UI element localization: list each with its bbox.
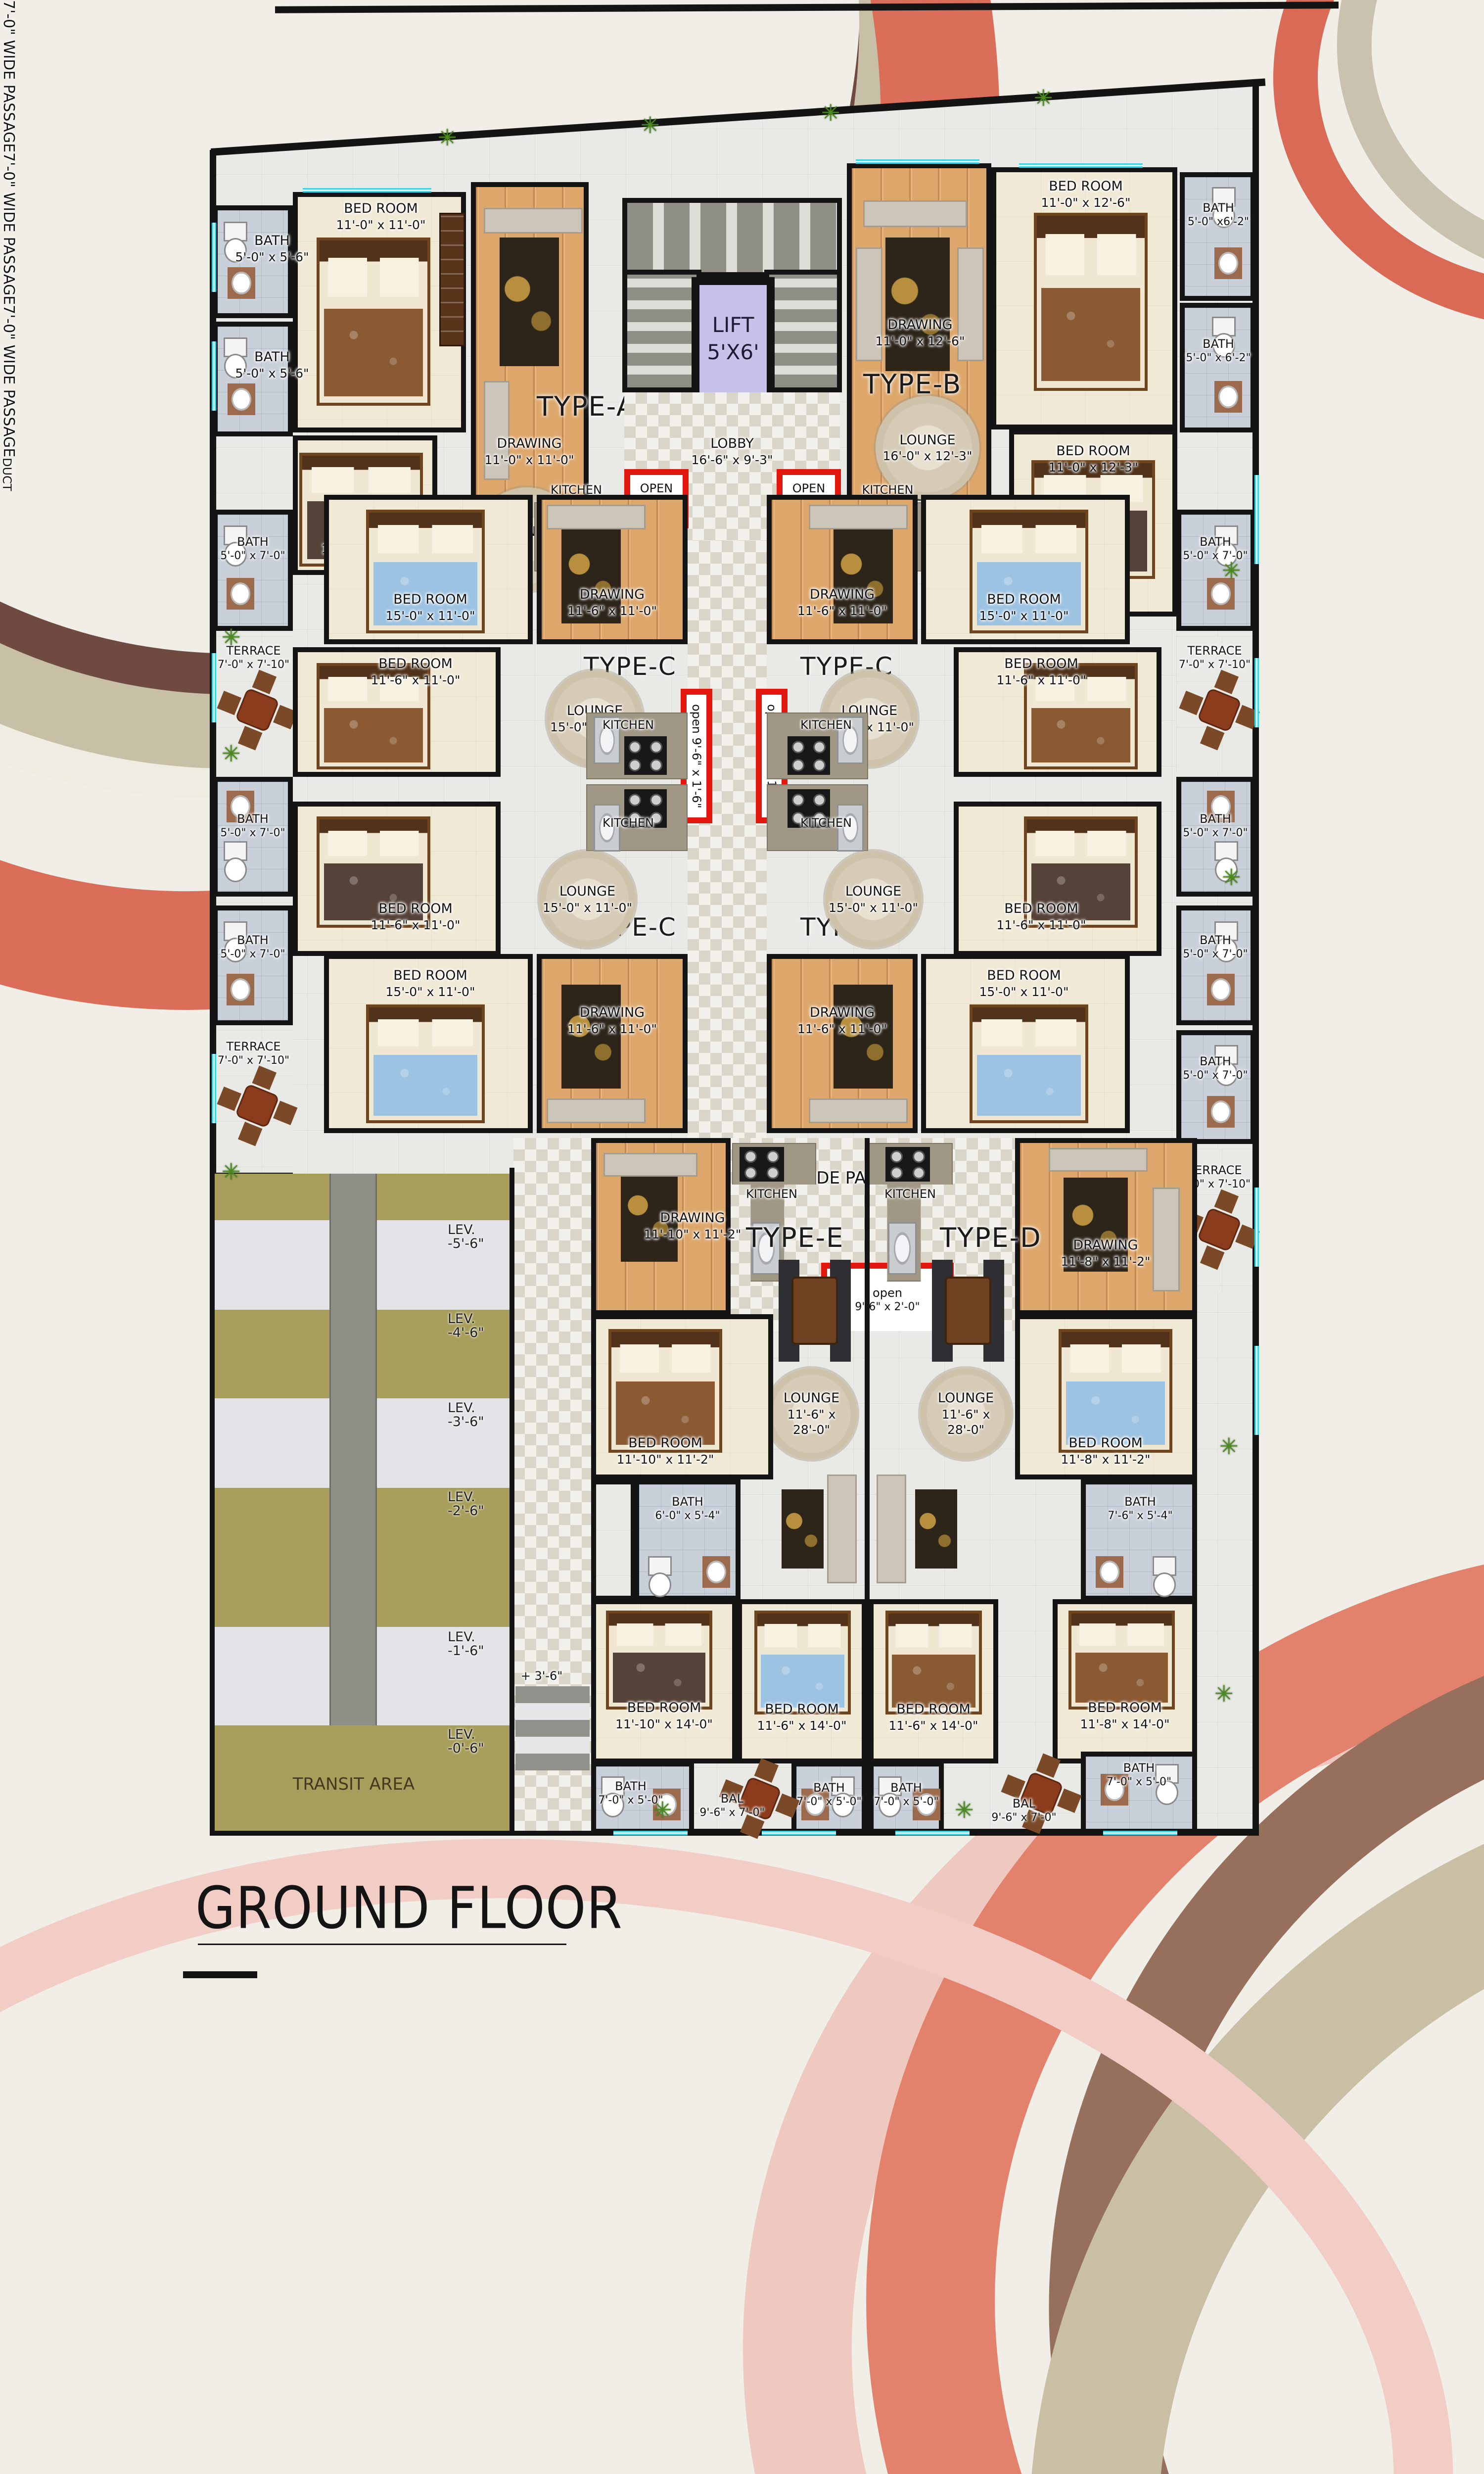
toilet-icon [648,1556,672,1576]
rug-icon [885,238,950,371]
plant-icon: ✳ [1222,559,1241,582]
sofa-icon [547,505,646,529]
sofa-icon [809,505,908,529]
passage-label: 7'-0" WIDE PASSAGE [0,305,17,457]
passage-label: 7'-0" WIDE PASSAGE [0,0,17,152]
unit-label-type-e: TYPE-E [746,1222,844,1253]
room-label-terrace: TERRACE7'-0" x 7'-10" [1171,643,1258,672]
room-label-bedroom: BED ROOM11'-8" x 14'-0" [1053,1700,1197,1732]
sofa-icon [1049,1148,1148,1172]
stairs [622,270,701,392]
basin-icon [227,578,254,610]
room-label-kitchen: KITCHEN [589,815,668,830]
room-label-kitchen: KITCHEN [732,1187,811,1201]
room-label-bath: BATH5'-0" x 5'-6" [232,349,312,381]
room-label-drawing: DRAWING11'-10" x 11'-2" [621,1210,764,1242]
room-label-bath: BATH5'-0" x 7'-0" [214,933,292,961]
room-label-bath: BATH6'-0" x 5'-4" [641,1494,735,1523]
room-label-drawing: DRAWING11'-0" x 12'-6" [851,317,989,349]
floor-plan: BATH5'-0" x 5'-6" BATH5'-0" x 5'-6" BED … [0,0,1484,1979]
toilet-icon [1153,1556,1176,1576]
room-label-bedroom: BED ROOM15'-0" x 11'-0" [359,591,502,623]
room-label-bedroom: BED ROOM11'-8" x 11'-2" [1031,1435,1180,1467]
bed-icon [606,1611,712,1710]
room-label-bath: BATH5'-0" x 7'-0" [1176,811,1254,840]
room-label-drawing: DRAWING11'-6" x 11'-0" [542,586,683,618]
transit-area-label: TRANSIT AREA [262,1774,445,1795]
room-label-kitchen: KITCHEN [589,717,668,732]
bed-icon [608,1329,722,1453]
basin-icon [1207,974,1235,1005]
basin-icon [1214,247,1242,279]
room-label-bedroom: BED ROOM11'-6" x 11'-0" [970,901,1113,933]
basin-icon [702,1556,730,1588]
stairs [764,270,842,392]
room-label-bedroom: BED ROOM11'-0" x 12'-6" [1017,178,1155,210]
sofa-icon [484,208,583,234]
room-label-bedroom: BED ROOM11'-6" x 11'-0" [344,656,487,688]
basin-icon [227,974,254,1005]
room-label-bedroom: BED ROOM15'-0" x 11'-0" [359,967,502,999]
room-label-drawing: DRAWING11'-8" x 11'-2" [1034,1237,1177,1269]
plant-icon: ✳ [1034,87,1053,109]
basin-icon [1207,1096,1235,1128]
room-label-bath: BATH5'-0" x6'-2" [1181,200,1255,229]
room-label-bath: BATH7'-0" x 5'-0" [790,1780,868,1809]
room-label-kitchen: KITCHEN [787,815,866,830]
room-label-bedroom: BED ROOM11'-10" x 11'-2" [591,1435,740,1467]
page-title: GROUND FLOOR [195,1874,623,1942]
rug-icon [782,1489,824,1569]
bed-icon [1034,213,1148,391]
level-label: LEV.-4'-6" [448,1312,484,1340]
window [613,1831,688,1835]
sofa-icon [809,1098,908,1123]
parking-wall [510,1168,514,1831]
plant-icon: ✳ [1214,1682,1234,1705]
basin-icon [1214,381,1242,413]
window [212,341,216,411]
room-label-bath: BATH5'-0" x 7'-0" [1176,933,1254,961]
bed-icon [754,1611,851,1714]
sink-icon [888,1222,917,1275]
balcony-label: BAL9'-6" x 7'-0" [984,1796,1064,1825]
window [212,653,216,722]
room-label-bath: BATH5'-0" x 7'-0" [1176,1054,1254,1083]
bed-icon [1068,1611,1175,1710]
plant-icon: ✳ [1219,1435,1239,1458]
lounge-rug: LOUNGE11'-6" x 28'-0" [766,1368,857,1460]
sofa-icon [863,200,967,227]
plant-icon: ✳ [821,101,840,124]
window [303,188,431,192]
level-label: LEV.-3'-6" [448,1401,484,1429]
room-label-bath: BATH5'-0" x 6'-2" [1181,336,1255,365]
window [1254,1346,1259,1435]
plant-icon: ✳ [653,1799,672,1821]
level-label: LEV.-2'-6" [448,1490,484,1519]
level-label: LEV.-5'-6" [448,1223,484,1251]
wardrobe-icon [439,213,465,346]
stove-icon [740,1147,784,1182]
room-label-kitchen: KITCHEN [787,717,866,732]
stove-icon [624,736,667,775]
basin-icon [228,383,255,415]
parking-ramp [329,1174,377,1725]
window [762,1831,836,1835]
swirl-bottomright-tan [1003,1733,1484,2474]
bed-icon [366,1004,485,1123]
rug-icon [561,985,621,1089]
room-label-terrace: TERRACE7'-0" x 7'-10" [210,1039,297,1068]
room-label-bedroom: BED ROOM11'-6" x 11'-0" [344,901,487,933]
rug-icon [834,985,893,1089]
unit-label-type-a: TYPE-A [537,391,636,422]
balcony-label: BAL9'-6" x 7'-0" [693,1791,772,1820]
bed-icon [1059,1329,1172,1453]
room-label-bedroom: BED ROOM11'-0" x 12'-3" [1024,443,1162,475]
bed-icon [970,1004,1088,1123]
sofa-icon [603,1153,697,1177]
sofa-icon [827,1475,857,1583]
bed-icon [317,238,430,406]
lounge-rug: LOUNGE11'-6" x 28'-0" [920,1368,1012,1460]
room-label-bedroom: BED ROOM11'-0" x 11'-0" [312,200,450,233]
toilet-icon [224,841,247,861]
lounge-rug: LOUNGE15'-0" x 11'-0" [825,851,922,948]
room-label-bath: BATH7'-0" x 5'-0" [1083,1760,1195,1789]
plant-icon: ✳ [438,126,457,149]
room-label-drawing: DRAWING11'-0" x 11'-0" [470,435,589,468]
swirl-topright-gray [1296,0,1484,336]
lift-small: LIFT5'X6' [692,277,775,401]
room-label-bath: BATH7'-0" x 5'-0" [868,1780,945,1809]
room-label-drawing: DRAWING11'-6" x 11'-0" [772,586,913,618]
toilet-icon [1212,317,1236,336]
room-label-bath: BATH5'-0" x 7'-0" [1176,534,1254,563]
plant-icon: ✳ [1222,866,1241,889]
title-underline [198,1944,566,1945]
room-label-bedroom: BED ROOM11'-6" x 14'-0" [869,1701,998,1733]
stairs [622,198,842,277]
room-label-bedroom: BED ROOM15'-0" x 11'-0" [952,591,1096,623]
room-label-bath: BATH5'-0" x 7'-0" [214,534,292,563]
level-label: LEV.-1'-6" [448,1630,484,1659]
basin-icon [228,267,255,299]
room-label-drawing: DRAWING11'-6" x 11'-0" [772,1004,913,1037]
window [856,159,979,164]
window [1019,163,1143,168]
window [212,223,216,292]
plant-icon: ✳ [222,626,241,649]
basin-icon [1096,1556,1123,1588]
duct [591,1479,636,1601]
passage-vertical-center [688,541,767,1140]
toilet-icon [1214,841,1238,861]
stove-icon [788,736,830,775]
room-label-bath: BATH7'-6" x 5'-4" [1091,1494,1190,1523]
room-label-bedroom: BED ROOM11'-10" x 14'-0" [591,1700,737,1732]
passage-label: 7'-0" WIDE PASSAGE [0,152,17,305]
sofa-icon [547,1098,646,1123]
rug-icon [500,238,559,366]
window [1254,658,1259,727]
window [212,1054,216,1123]
window [1254,475,1259,564]
bed-icon [885,1611,982,1714]
duct-label: DUCT [0,458,14,491]
plant-icon: ✳ [222,742,241,765]
swirl-topright-red [1223,0,1484,386]
plant-icon: ✳ [955,1799,974,1821]
unit-label-type-d: TYPE-D [940,1222,1042,1253]
lobby-label: LOBBY16'-6" x 9'-3" [658,435,806,468]
plant-icon: ✳ [641,114,660,137]
room-label-drawing: DRAWING11'-6" x 11'-0" [542,1004,683,1037]
window [1254,1188,1259,1267]
stove-icon [885,1147,930,1182]
dining-table-icon [945,1277,991,1345]
unit-label-type-b: TYPE-B [863,369,962,400]
room-label-bedroom: BED ROOM11'-6" x 11'-0" [970,656,1113,688]
room-label-bedroom: BED ROOM15'-0" x 11'-0" [952,967,1096,999]
rug-icon [915,1489,957,1569]
site-boundary-line [275,1,1339,13]
level-label: LEV.-0'-6" [448,1728,484,1756]
room-label-bedroom: BED ROOM11'-6" x 14'-0" [737,1701,867,1733]
entry-steps [515,1686,590,1770]
room-label-bath: BATH5'-0" x 7'-0" [214,811,292,840]
room-label-kitchen: KITCHEN [871,1187,950,1201]
sofa-icon [877,1475,906,1583]
dining-table-icon [791,1277,838,1345]
boundary-stub [183,1971,257,1978]
window [1103,1831,1177,1835]
lounge-rug: LOUNGE15'-0" x 11'-0" [539,851,636,948]
room-label-bath: BATH5'-0" x 5'-6" [232,233,312,265]
window [895,1831,970,1835]
plant-icon: ✳ [222,1160,241,1183]
